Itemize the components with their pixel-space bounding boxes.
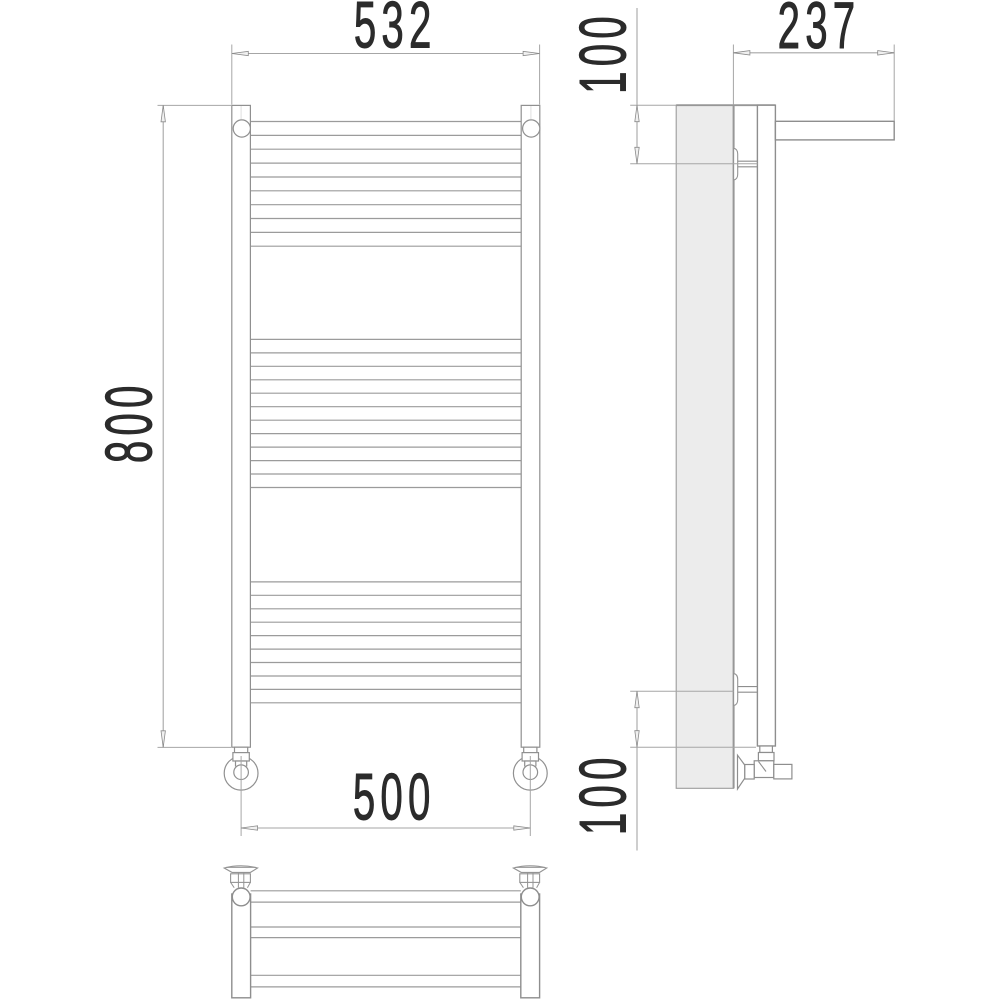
svg-text:237: 237 xyxy=(778,0,861,62)
svg-text:532: 532 xyxy=(354,0,437,62)
svg-text:500: 500 xyxy=(353,760,436,834)
svg-text:800: 800 xyxy=(92,380,166,463)
svg-text:100: 100 xyxy=(566,752,640,835)
svg-text:100: 100 xyxy=(566,11,640,94)
